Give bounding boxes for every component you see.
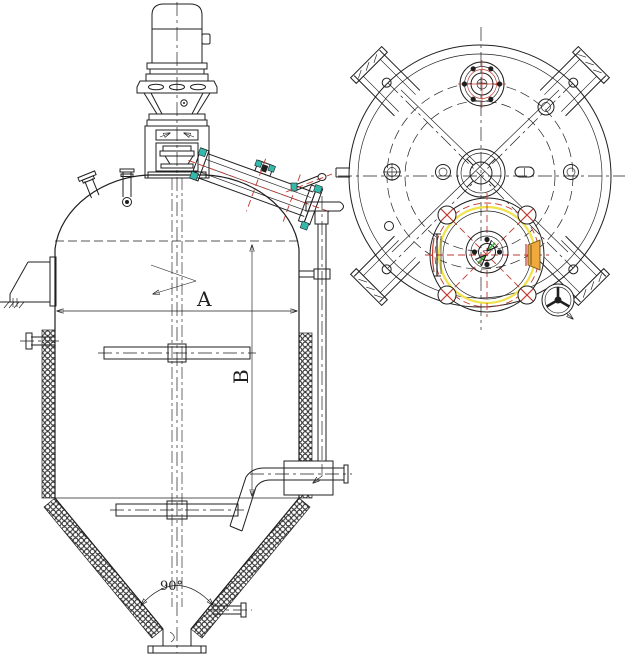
manway-clamp-fitting [300,221,309,230]
manhole-clamp [438,286,456,304]
manhole-handle [526,240,540,270]
dimension-b-label: B [229,369,253,384]
manway-clamp-fitting [190,171,199,180]
manway-handle [286,174,332,193]
support-bracket [0,257,56,308]
flow-direction-arrow [151,265,196,294]
manhole-clamp [518,286,536,304]
side-nozzle-left [20,333,62,349]
plan-view [336,27,625,330]
tank-engineering-drawing: 90° [0,0,631,656]
manhole-clamp [518,206,536,224]
drawing-canvas: 90° [0,0,631,656]
agitator [98,178,256,607]
manway-clamp-fitting [198,148,207,157]
motor-terminal-box [202,34,210,44]
cone-angle-label: 90° [160,579,183,594]
support-lug [351,47,423,119]
manhole-clamp [438,206,456,224]
head-nozzle-vent [120,169,134,207]
plan-top-nozzle [458,60,506,108]
front-elevation-view: 90° [0,2,352,653]
head-nozzle-angled [78,171,104,200]
dimension-b: B [229,245,253,496]
manway-clamp-fitting [268,165,276,173]
dimension-a-label: A [196,287,212,311]
handwheel [542,284,574,319]
plan-manhole [425,193,549,317]
inclined-manway [179,134,341,239]
cone-angle-annotation: 90° [141,579,213,605]
